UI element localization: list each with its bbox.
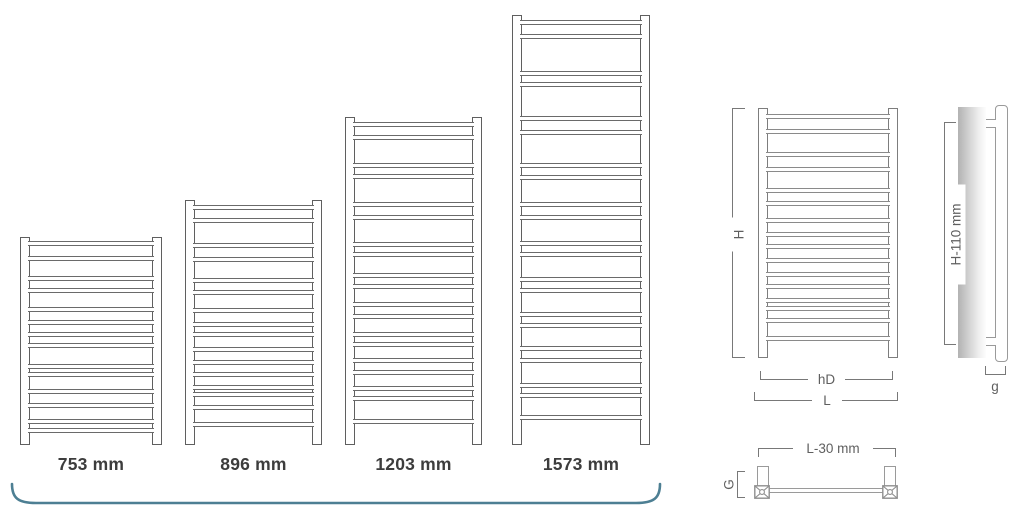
radiator-figure-4: [512, 15, 650, 445]
wall-bracket-top: [986, 119, 996, 128]
rung: [766, 244, 890, 249]
rung: [353, 419, 474, 424]
collector-rail-right: [640, 15, 650, 445]
rung: [353, 122, 474, 127]
rung: [353, 215, 474, 220]
rung: [193, 385, 314, 390]
range-bracket: [8, 478, 664, 510]
rung: [193, 422, 314, 427]
rung: [28, 364, 154, 369]
radiator-figure-2: [185, 200, 322, 445]
rung: [353, 396, 474, 401]
mount-plate-left-icon: [754, 485, 770, 499]
rung: [520, 130, 642, 135]
rung: [520, 393, 642, 398]
dim-H110-label: H-110 mm: [947, 185, 966, 285]
rung: [193, 218, 314, 223]
rung: [520, 71, 642, 76]
rung: [28, 343, 154, 348]
dim-G-label: G: [722, 474, 737, 496]
rung: [766, 201, 890, 206]
side-view-tube: [995, 105, 1008, 362]
radiator-figure-1: [20, 237, 162, 445]
rung: [766, 129, 890, 134]
dim-L-label: L: [812, 393, 842, 408]
rung: [28, 428, 154, 433]
dim-g-bracket: [985, 366, 1006, 375]
rung: [520, 163, 642, 168]
rung: [353, 342, 474, 347]
rung: [353, 284, 474, 289]
height-label-1: 753 mm: [0, 452, 182, 476]
height-label-2: 896 mm: [165, 452, 342, 476]
rung: [353, 273, 474, 278]
rung: [766, 258, 890, 263]
dim-H-label: H: [730, 218, 749, 252]
rung: [28, 403, 154, 408]
rung: [28, 276, 154, 281]
collector-rail-left: [512, 15, 522, 445]
rung: [520, 383, 642, 388]
wall-bracket-bottom: [986, 337, 996, 346]
rung: [520, 215, 642, 220]
radiator-size-diagram: 753 mm 896 mm 1203 mm 1573 mm H hD L H-1…: [0, 0, 1025, 523]
rung: [353, 242, 474, 247]
rung: [766, 218, 890, 223]
rung: [193, 322, 314, 327]
rung: [353, 358, 474, 363]
rung: [766, 306, 890, 311]
dim-g-label: g: [986, 379, 1004, 394]
rung: [28, 256, 154, 261]
rung: [193, 278, 314, 283]
rung: [28, 332, 154, 337]
rung: [193, 290, 314, 295]
rung: [766, 284, 890, 289]
rung: [193, 392, 314, 397]
rung: [353, 135, 474, 140]
rung: [353, 314, 474, 319]
height-label-3: 1203 mm: [325, 452, 502, 476]
rung: [520, 252, 642, 257]
rung: [193, 332, 314, 337]
rung: [193, 257, 314, 262]
rung: [193, 205, 314, 210]
rung: [766, 318, 890, 323]
rung: [520, 34, 642, 39]
rung: [520, 346, 642, 351]
rung: [520, 277, 642, 282]
rung: [766, 188, 890, 193]
rung: [193, 308, 314, 313]
rung: [766, 336, 890, 341]
rung: [766, 272, 890, 277]
rung: [353, 370, 474, 375]
rung: [353, 252, 474, 257]
dim-L30-label: L-30 mm: [793, 441, 873, 456]
rung: [28, 288, 154, 293]
rung: [28, 307, 154, 312]
rung: [28, 241, 154, 246]
rung: [353, 302, 474, 307]
rung: [520, 323, 642, 328]
rung: [28, 389, 154, 394]
rung: [520, 241, 642, 246]
rung: [766, 114, 890, 119]
front-view-figure: [758, 108, 898, 358]
rung: [353, 174, 474, 179]
rung: [766, 167, 890, 172]
rung: [520, 82, 642, 87]
rung: [520, 358, 642, 363]
radiator-figure-3: [345, 117, 482, 445]
top-view-rung-bar: [768, 488, 885, 493]
rung: [520, 202, 642, 207]
rung: [193, 360, 314, 365]
height-label-4: 1573 mm: [492, 452, 670, 476]
dim-G-bracket: [737, 471, 745, 498]
rung: [520, 116, 642, 121]
rung: [353, 163, 474, 168]
mount-plate-right-icon: [882, 485, 898, 499]
rung: [193, 347, 314, 352]
rung: [28, 320, 154, 325]
rung: [193, 243, 314, 248]
rung: [520, 175, 642, 180]
rung: [520, 415, 642, 420]
rung: [193, 372, 314, 377]
rung: [28, 372, 154, 377]
rung: [520, 20, 642, 25]
rung: [520, 312, 642, 317]
collector-rail-right: [152, 237, 162, 445]
rung: [766, 152, 890, 157]
rung: [193, 405, 314, 410]
rung: [766, 232, 890, 237]
rung: [353, 386, 474, 391]
rung: [353, 332, 474, 337]
rung: [28, 419, 154, 424]
rung: [353, 202, 474, 207]
rung: [520, 288, 642, 293]
rung: [766, 298, 890, 303]
dim-hD-label: hD: [808, 372, 845, 387]
collector-rail-left: [20, 237, 30, 445]
